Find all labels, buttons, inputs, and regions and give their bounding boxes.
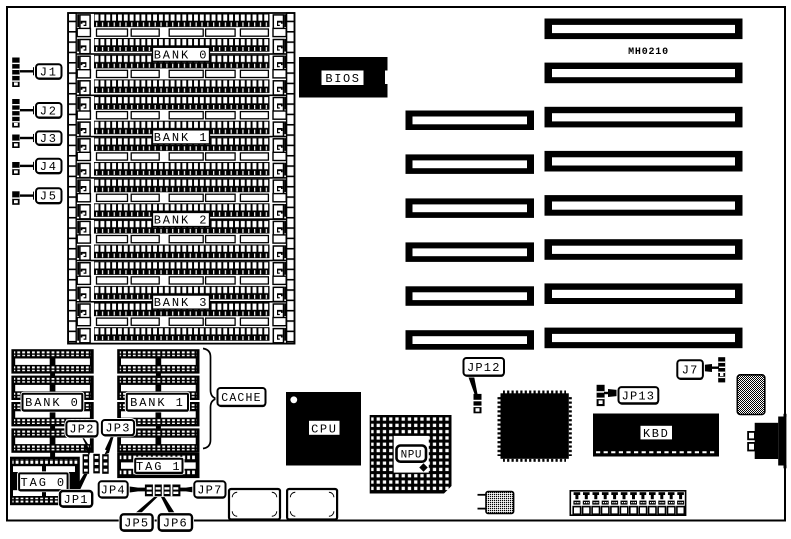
svg-text:JP5: JP5 bbox=[124, 517, 149, 531]
svg-text:MH0210: MH0210 bbox=[628, 47, 669, 58]
svg-text:JP1: JP1 bbox=[63, 493, 88, 507]
svg-text:J3: J3 bbox=[40, 132, 58, 146]
svg-text:BANK 1: BANK 1 bbox=[154, 131, 209, 145]
svg-text:JP2: JP2 bbox=[69, 423, 94, 437]
svg-text:JP13: JP13 bbox=[622, 389, 656, 403]
svg-text:J5: J5 bbox=[40, 190, 58, 204]
svg-text:CPU: CPU bbox=[311, 422, 337, 436]
svg-text:J4: J4 bbox=[40, 160, 58, 174]
svg-text:BANK 0: BANK 0 bbox=[154, 48, 209, 62]
svg-text:BANK 2: BANK 2 bbox=[154, 214, 209, 228]
svg-text:BIOS: BIOS bbox=[325, 72, 360, 86]
svg-text:J1: J1 bbox=[40, 65, 58, 79]
svg-text:TAG 0: TAG 0 bbox=[21, 476, 67, 490]
svg-text:J7: J7 bbox=[682, 364, 699, 378]
svg-text:KBD: KBD bbox=[643, 427, 669, 441]
svg-text:BANK 0: BANK 0 bbox=[25, 396, 80, 410]
svg-text:TAG 1: TAG 1 bbox=[136, 460, 182, 474]
svg-text:JP7: JP7 bbox=[197, 483, 222, 497]
svg-text:J2: J2 bbox=[40, 104, 58, 118]
svg-text:JP4: JP4 bbox=[101, 483, 126, 497]
svg-text:JP3: JP3 bbox=[105, 422, 130, 436]
svg-text:CACHE: CACHE bbox=[221, 392, 262, 405]
svg-text:BANK 1: BANK 1 bbox=[130, 396, 185, 410]
svg-text:JP12: JP12 bbox=[467, 361, 501, 375]
svg-text:JP6: JP6 bbox=[163, 517, 188, 531]
svg-text:BANK 3: BANK 3 bbox=[154, 296, 209, 310]
svg-text:NPU: NPU bbox=[401, 449, 422, 461]
